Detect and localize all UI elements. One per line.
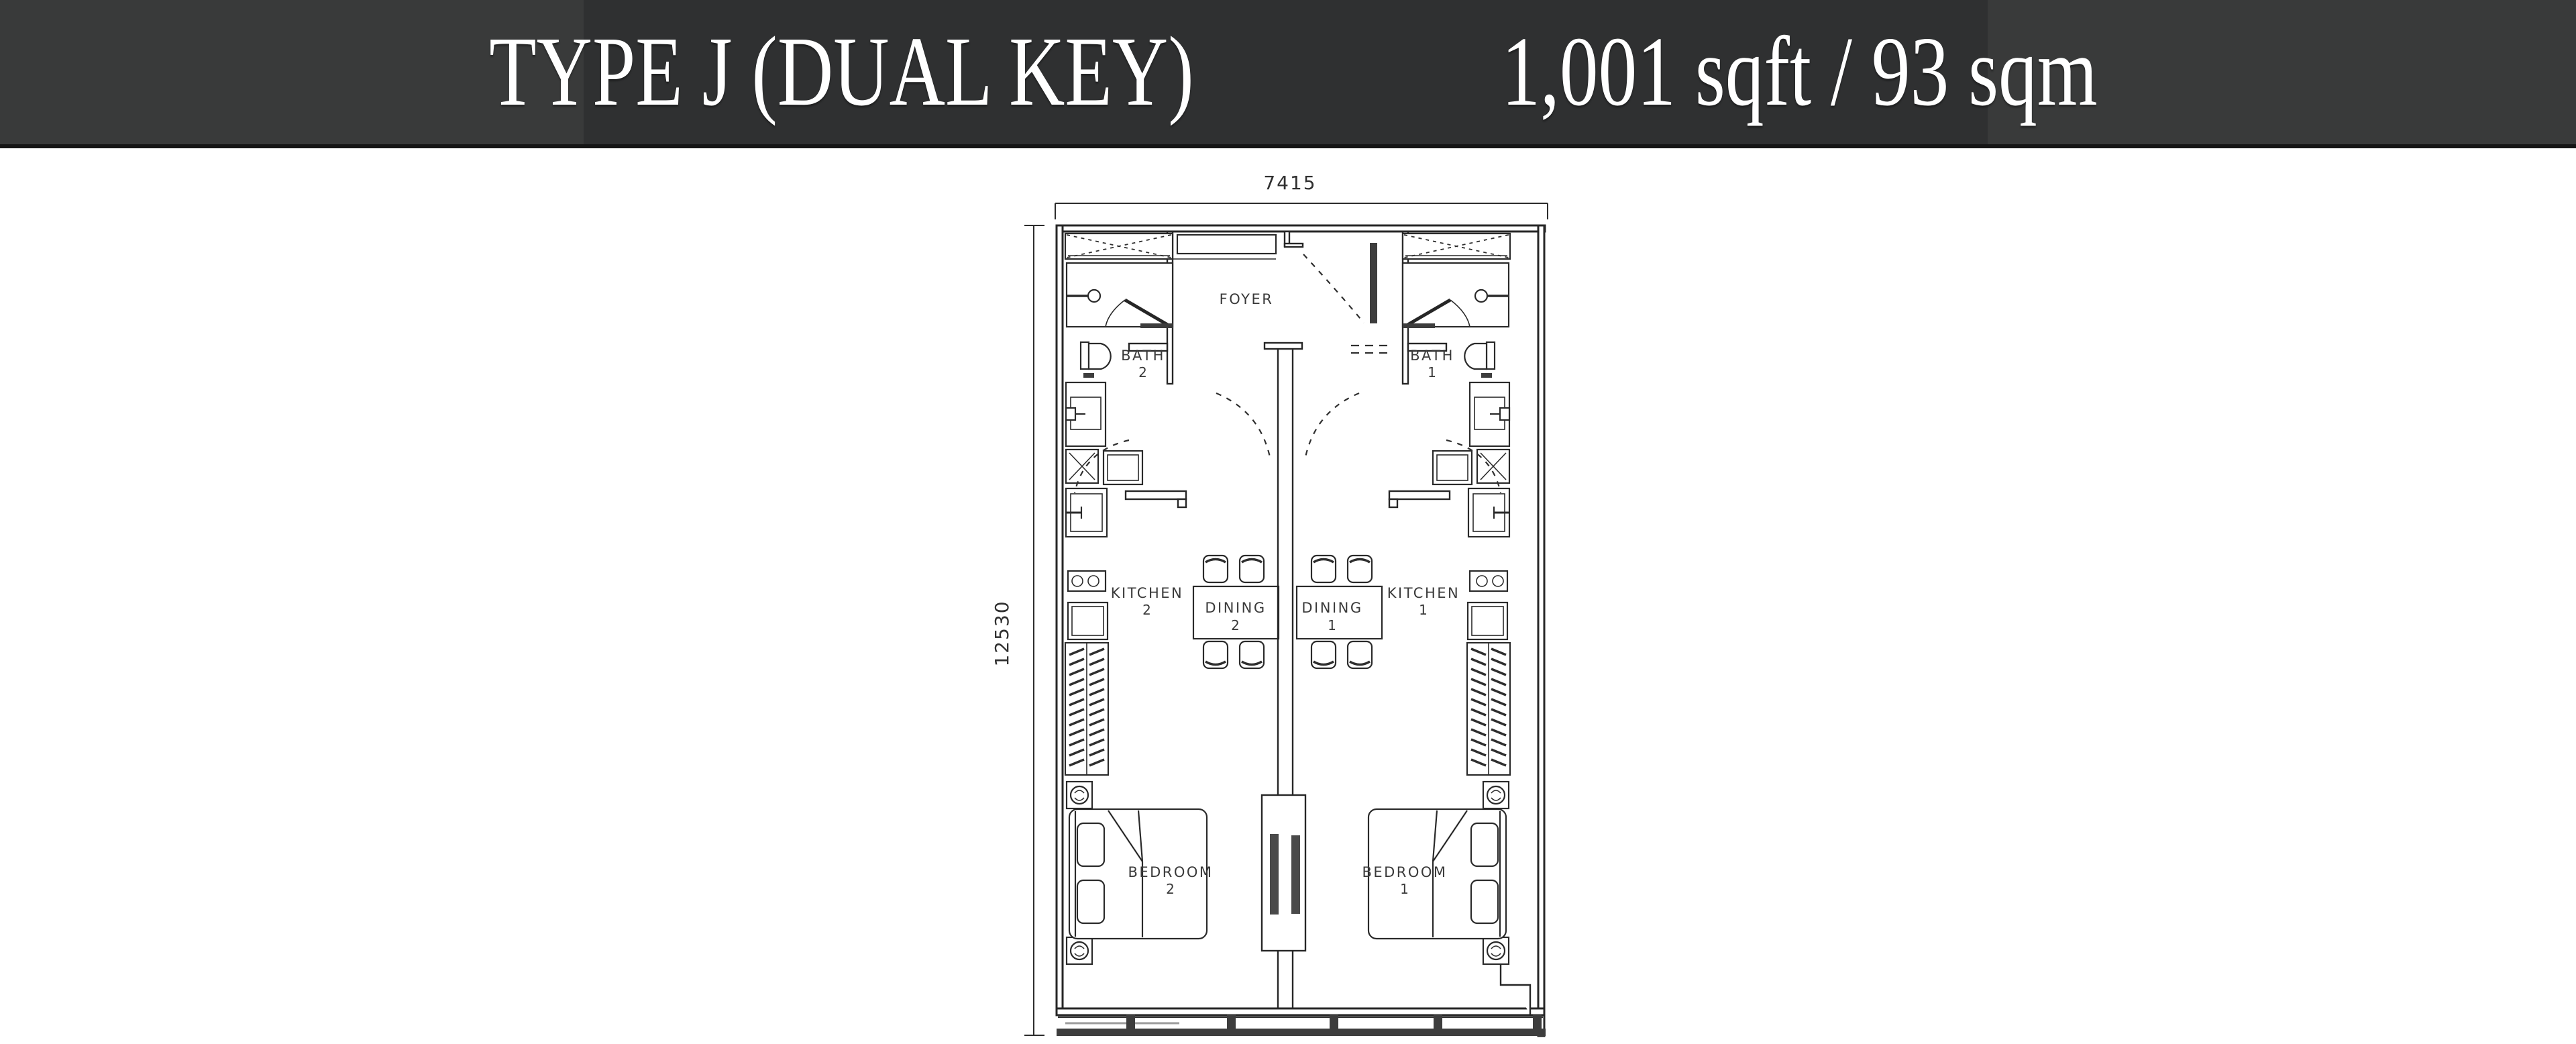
room-number-bath2: 2 [1138, 364, 1148, 380]
room-number-dining2: 2 [1231, 617, 1240, 633]
window-mullion [1330, 1014, 1338, 1030]
sliding-door-icon [1262, 795, 1305, 951]
wall-left [1057, 225, 1063, 1015]
window-band-icon [1057, 1014, 1546, 1036]
room-label-bath2: BATH [1121, 348, 1165, 364]
toilet-icon [1081, 342, 1111, 378]
room-number-bedroom1: 1 [1400, 881, 1409, 897]
entry-wall-stub [1370, 243, 1377, 323]
kitchen-wall-step [1178, 499, 1186, 507]
wall-right [1538, 225, 1544, 1036]
floor-plan: 7415 12530 FOYER BATH 2 BATH 1 KITCHEN 2… [0, 0, 2576, 1044]
room-number-kitchen2: 2 [1142, 602, 1152, 618]
central-party-wall [1262, 343, 1305, 1008]
room-number-bath1: 1 [1428, 364, 1437, 380]
room-number-dining1: 1 [1328, 617, 1337, 633]
room-label-dining2: DINING [1205, 600, 1266, 616]
ceiling-fan-icon [1067, 937, 1092, 964]
door-swing-arc-icon [1216, 393, 1271, 460]
hob-icon [1068, 571, 1106, 591]
shower-icon [1067, 263, 1173, 328]
vanity-sink-icon [1066, 382, 1106, 446]
dimension-width-value: 7415 [1263, 172, 1316, 194]
entry [1173, 231, 1387, 353]
washer-icon [1066, 450, 1098, 483]
closet-icon [1065, 233, 1173, 259]
party-wall-cap [1265, 343, 1302, 349]
room-label-dining1: DINING [1301, 600, 1362, 616]
tall-cabinet-icon [1065, 643, 1108, 775]
room-label-bath1: BATH [1410, 348, 1454, 364]
wall-top [1057, 225, 1545, 231]
kitchen-north-wall [1126, 491, 1186, 499]
wall-bottom [1057, 1008, 1544, 1015]
dimension-depth-value: 12530 [991, 600, 1013, 666]
dimension-depth: 12530 [991, 225, 1044, 1035]
room-label-kitchen2: KITCHEN [1111, 585, 1184, 601]
room-label-kitchen1: KITCHEN [1387, 585, 1460, 601]
room-number-bedroom2: 2 [1166, 881, 1175, 897]
room-label-bedroom2: BEDROOM [1128, 864, 1213, 880]
window-mullion [1227, 1014, 1236, 1030]
kitchen-sink-icon [1066, 488, 1107, 537]
pillow-icon [1077, 880, 1104, 923]
window-mullion [1533, 1014, 1542, 1030]
bulkhead-dashed-line [1351, 346, 1387, 353]
ceiling-fan-icon [1067, 782, 1092, 808]
room-label-bedroom1: BEDROOM [1362, 864, 1447, 880]
room-number-kitchen1: 1 [1419, 602, 1428, 618]
fridge-icon [1068, 603, 1108, 639]
window-mullion [1434, 1014, 1442, 1030]
dimension-width: 7415 [1055, 172, 1548, 219]
pillow-icon [1077, 823, 1104, 866]
counter-icon [1104, 451, 1142, 484]
wall-step-bottom-right [1501, 964, 1530, 1014]
foyer-cabinet-icon [1177, 235, 1276, 254]
room-label-foyer: FOYER [1220, 291, 1274, 307]
entry-door-arc [1303, 254, 1364, 323]
entry-sill [1285, 244, 1303, 247]
window-mullion [1126, 1014, 1135, 1030]
